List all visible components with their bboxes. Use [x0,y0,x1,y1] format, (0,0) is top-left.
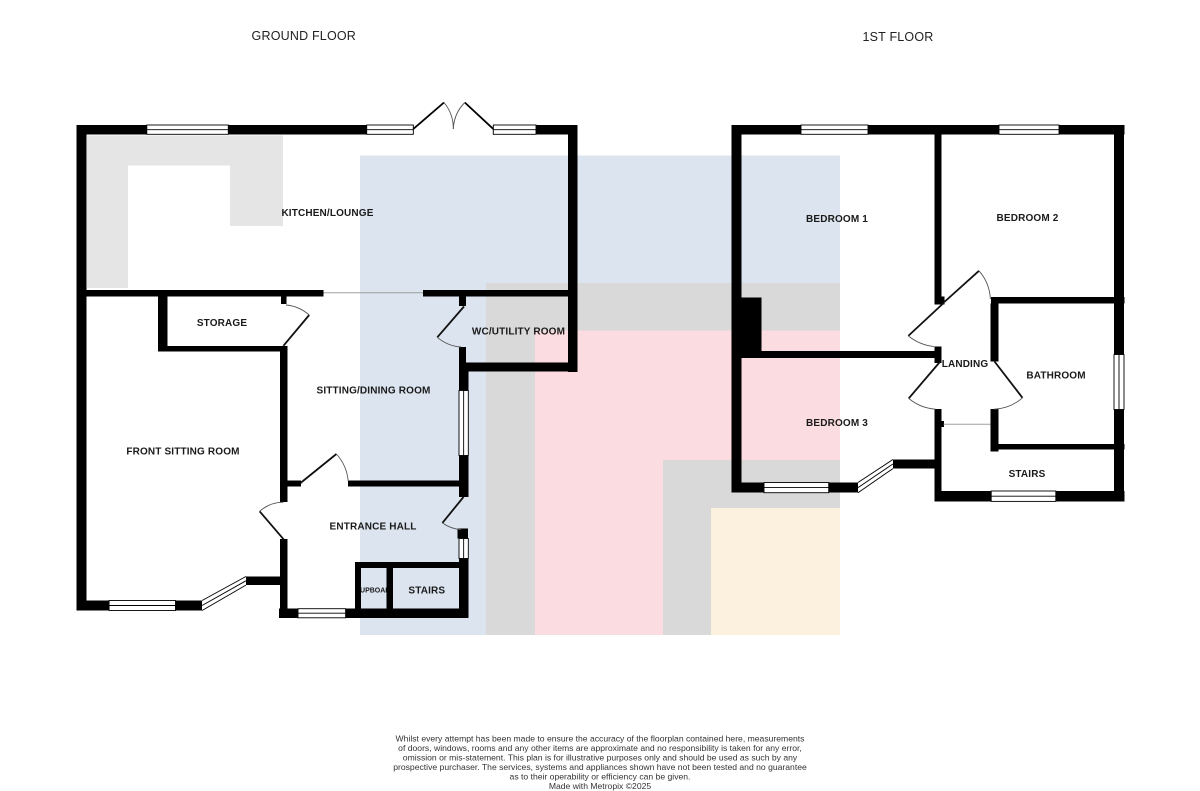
svg-text:1ST FLOOR: 1ST FLOOR [862,30,933,44]
svg-text:Made with Metropix ©2025: Made with Metropix ©2025 [549,781,652,791]
svg-text:WC/UTILITY ROOM: WC/UTILITY ROOM [472,327,565,338]
svg-text:GROUND FLOOR: GROUND FLOOR [252,29,357,43]
svg-text:ENTRANCE HALL: ENTRANCE HALL [330,522,417,533]
svg-text:prospective purchaser. The ser: prospective purchaser. The services, sys… [393,762,807,772]
svg-text:LANDING: LANDING [942,359,989,370]
svg-text:STAIRS: STAIRS [1009,469,1046,480]
svg-text:FRONT SITTING ROOM: FRONT SITTING ROOM [126,447,239,458]
svg-text:BATHROOM: BATHROOM [1026,371,1085,382]
svg-text:BEDROOM 3: BEDROOM 3 [806,418,868,429]
svg-text:Whilst every attempt has been: Whilst every attempt has been made to en… [396,734,805,744]
svg-text:as to their operability or eff: as to their operability or efficiency ca… [510,772,691,782]
svg-text:omission or mis-statement. Thi: omission or mis-statement. This plan is … [403,753,798,763]
svg-text:BEDROOM 2: BEDROOM 2 [997,213,1059,224]
svg-text:BEDROOM 1: BEDROOM 1 [806,214,868,225]
svg-text:KITCHEN/LOUNGE: KITCHEN/LOUNGE [281,208,373,219]
svg-text:STORAGE: STORAGE [197,318,247,329]
svg-text:of doors, windows, rooms and a: of doors, windows, rooms and any other i… [398,743,802,753]
svg-text:SITTING/DINING ROOM: SITTING/DINING ROOM [317,386,431,397]
svg-text:STAIRS: STAIRS [408,586,445,597]
